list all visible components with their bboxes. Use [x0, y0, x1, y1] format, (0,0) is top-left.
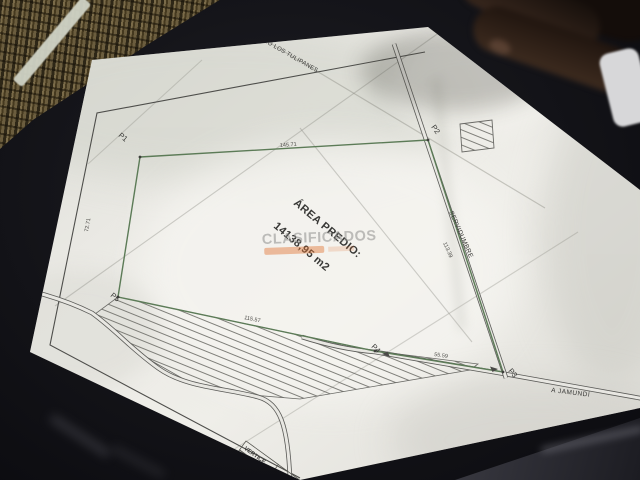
hand	[0, 0, 640, 480]
photo: PREDIO LOS TULIPANES ÁREA PREDIO: 14138,…	[0, 0, 640, 480]
